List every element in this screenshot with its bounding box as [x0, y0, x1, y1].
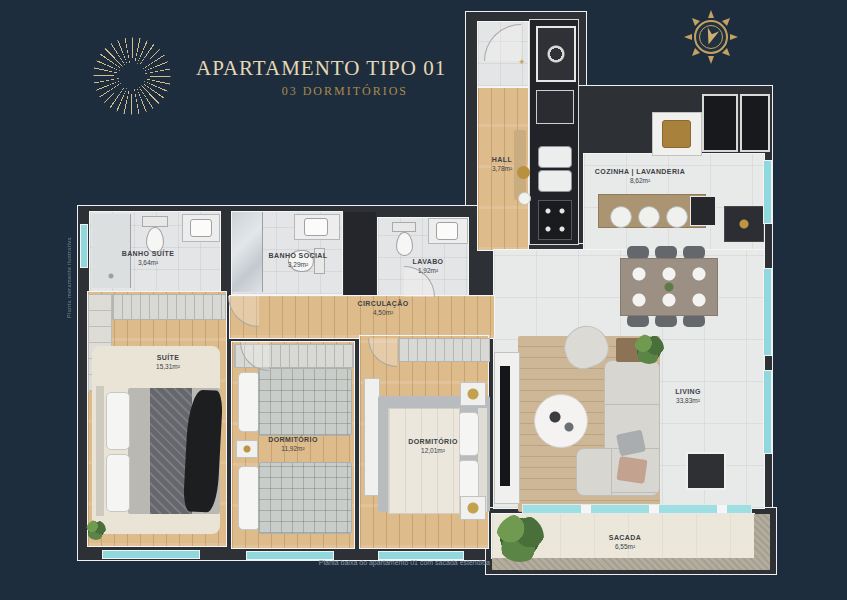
disclaimer-note: Planta meramente ilustrativa — [66, 188, 72, 318]
title-block: APARTAMENTO TIPO 01 03 DORMITÓRIOS — [196, 56, 408, 99]
dorm1-nightstand — [236, 440, 258, 458]
toilet — [146, 227, 164, 253]
sliding-door — [522, 504, 752, 514]
toilet-tank — [314, 248, 325, 274]
window-suite — [102, 550, 200, 559]
plant-icon — [86, 520, 106, 540]
dorm2-wardrobe — [398, 338, 490, 362]
coffee-table — [534, 394, 588, 448]
pouf-table — [686, 452, 726, 490]
dorm1-bed-1 — [258, 368, 352, 436]
plan-caption: Planta baixa do apartamento 01 com sacad… — [268, 559, 490, 566]
compass-icon — [684, 10, 738, 64]
dorm2-bed — [388, 408, 460, 514]
bar-stool — [610, 206, 632, 228]
dorm1-pillow — [238, 466, 260, 530]
kitchen-sink-2 — [538, 170, 572, 192]
bar-stool — [666, 206, 688, 228]
elevator-shaft-2 — [740, 94, 770, 152]
island-cooktop — [690, 196, 716, 226]
dorm1-pillow — [238, 372, 260, 432]
dorm1-bed-2 — [258, 462, 352, 534]
toilet-tank — [392, 222, 416, 232]
window-banho-suite — [80, 224, 88, 268]
suite-pillow — [106, 454, 130, 512]
sink — [190, 219, 212, 237]
duct-shaft — [344, 212, 376, 300]
suite-wardrobe — [112, 294, 226, 320]
sink — [436, 222, 458, 240]
page-subtitle: 03 DORMITÓRIOS — [196, 84, 408, 99]
plant-icon — [634, 334, 664, 364]
window-kitchen — [763, 160, 772, 224]
kitchen-wall-counter — [724, 206, 764, 242]
tv — [500, 366, 510, 486]
dorm2-nightstand — [460, 382, 486, 406]
elevator-shaft-1 — [702, 94, 738, 152]
oven — [536, 90, 574, 124]
gold-decor — [517, 166, 530, 179]
floor-plan-page: APARTAMENTO TIPO 01 03 DORMITÓRIOS — [0, 0, 847, 600]
washing-machine — [536, 26, 576, 82]
window-living-2 — [763, 370, 772, 454]
dorm2-nightstand — [460, 496, 486, 520]
page-title: APARTAMENTO TIPO 01 — [196, 56, 408, 81]
shower-suite — [92, 214, 131, 288]
toilet — [396, 232, 413, 256]
suite-pillow — [106, 392, 130, 450]
sunburst-logo-icon — [90, 34, 174, 118]
window-living-1 — [763, 268, 772, 356]
balcony-plant-icon — [496, 514, 544, 562]
sink — [304, 218, 328, 236]
cooktop — [538, 200, 572, 240]
suite-headboard — [96, 386, 104, 516]
toilet — [288, 250, 314, 272]
kitchen-sink-1 — [538, 146, 572, 168]
shower-social — [232, 212, 263, 292]
hall-console — [514, 130, 526, 200]
floor-corridor — [230, 296, 494, 338]
dining-table — [620, 258, 718, 316]
toilet-tank — [142, 216, 168, 227]
bar-stool — [638, 206, 660, 228]
balcony-rail-bottom — [492, 558, 770, 570]
bar-cart — [662, 120, 691, 148]
sofa-chaise — [576, 448, 612, 496]
sofa-pillow-tan — [616, 456, 647, 484]
decor-plate — [518, 192, 531, 205]
dorm2-pillow — [458, 412, 479, 456]
